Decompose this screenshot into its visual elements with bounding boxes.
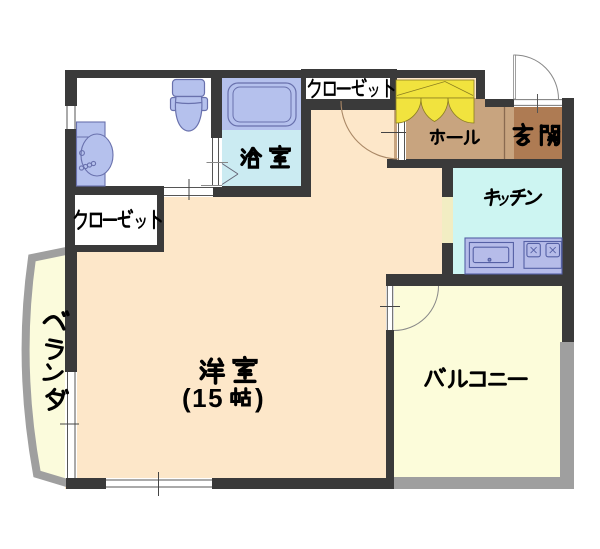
svg-text:(15: (15 bbox=[182, 383, 224, 413]
svg-text:): ) bbox=[255, 383, 264, 413]
